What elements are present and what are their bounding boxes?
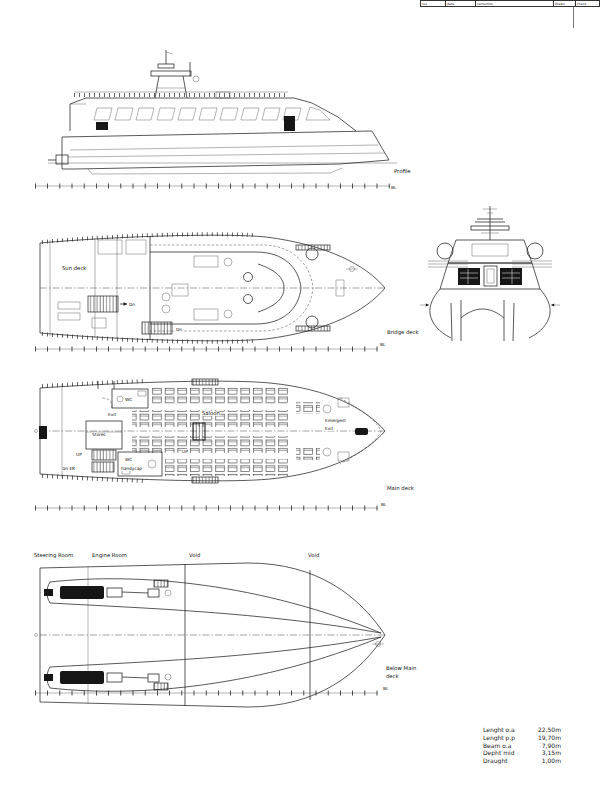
emergent-exit-label-2: Exit [325, 426, 333, 431]
seat-rows [150, 387, 288, 404]
steering-room-label: Steering Room [34, 552, 73, 559]
particular-value: 1,00m [542, 757, 561, 765]
hull-profile [62, 131, 389, 169]
window-grid-port [458, 268, 480, 285]
particular-label: Draught [483, 757, 508, 765]
sun-deck-bench [58, 302, 80, 309]
up-mid-label: UP [182, 449, 188, 454]
drawing-sheet: rev date correction drawn check [0, 0, 601, 800]
particular-value: 7,90m [542, 742, 561, 750]
stairs-mid [193, 423, 205, 440]
helm-seat [244, 295, 253, 304]
engine-stbd [60, 671, 104, 684]
deck-box [126, 240, 146, 254]
particular-row: Lenght o.a 22,50m [483, 726, 561, 734]
profile-label: Profile [394, 168, 410, 174]
side-escape-hatch [192, 379, 218, 385]
stores-label: Stores [92, 432, 106, 437]
roof-vent [216, 92, 230, 98]
lounge-chair [162, 305, 170, 313]
liferaft-front [527, 243, 543, 259]
down-er-label: Dn ER [62, 466, 75, 471]
seat-rows [296, 448, 320, 460]
particular-label: Lenght o.a [483, 726, 515, 734]
helm-seat [244, 273, 253, 282]
gearbox [107, 673, 122, 682]
liferaft-rack [296, 326, 330, 331]
ga-drawing: Profile BL Dn Dn [0, 0, 601, 800]
main-deck-label: Main deck [387, 485, 415, 491]
profile-view: Profile BL [35, 50, 410, 190]
steering-gear [44, 674, 53, 681]
bow-fitting [323, 448, 331, 456]
window-grid-stbd [500, 268, 522, 285]
down-label-2: Dn [176, 327, 182, 332]
side-door [284, 116, 295, 131]
er-hatch [154, 580, 168, 587]
hull-door [96, 122, 108, 130]
particular-row: Beam o.a 7,90m [483, 742, 561, 750]
window-band [94, 108, 301, 120]
wheelhouse-chair [224, 310, 232, 318]
sun-deck-label: Sun deck [62, 265, 87, 271]
tunnel-arch [461, 309, 504, 318]
stairs-down [88, 296, 118, 312]
particular-row: Lenght p.p 19,70m [483, 734, 561, 742]
wc-handicap-label-1: WC [125, 457, 132, 462]
wheelhouse-front [448, 240, 532, 263]
bow-door [355, 428, 368, 435]
baseline-label: BL [380, 342, 386, 347]
baseline-label: BL [391, 185, 397, 190]
bridge-deck-label: Bridge deck [387, 329, 419, 336]
engine-room-label: Engine Room [92, 552, 127, 559]
stairs-down-er [92, 462, 114, 472]
stern-door [39, 426, 47, 439]
seat-rows [296, 402, 320, 414]
seat-rows [132, 436, 290, 453]
superstructure-profile [70, 98, 356, 131]
demihull-profile [88, 168, 342, 174]
side-escape-hatch [192, 477, 218, 483]
liferaft-rack [296, 245, 330, 250]
gearbox [107, 588, 122, 597]
main-deck-view: WC Exit Stores UP Dn ER WC handycap UP S… [35, 379, 415, 508]
exit-label: Exit [108, 412, 116, 417]
wheelhouse-table [194, 256, 218, 267]
principal-particulars: Lenght o.a 22,50m Lenght p.p 19,70m Beam… [483, 726, 561, 765]
void-2-label: Void [308, 552, 319, 558]
particular-label: Depht mid [483, 749, 515, 757]
hull-flare-stbd [529, 289, 550, 338]
wheelhouse-table [194, 309, 218, 320]
below-main-deck-view: Steering Room Engine Room Void Void [34, 552, 416, 707]
windshield [306, 107, 330, 120]
up-label: UP [76, 452, 82, 457]
er-hatch [154, 683, 168, 690]
below-main-label-2: deck [386, 673, 400, 679]
void-1-label: Void [189, 552, 200, 558]
deck-box [98, 240, 122, 254]
below-main-label-1: Below Main [386, 665, 416, 671]
stairs-up [92, 450, 116, 460]
down-label: Dn [129, 302, 135, 307]
waterjet-unit [148, 589, 159, 597]
waterjet-unit [148, 674, 159, 682]
seat-rows [165, 459, 290, 476]
particular-row: Draught 1,00m [483, 757, 561, 765]
wheelhouse-chair [224, 258, 232, 266]
particular-value: 19,70m [538, 734, 561, 742]
baseline-label: BL [383, 686, 389, 691]
particular-label: Beam o.a [483, 742, 511, 750]
particular-row: Depht mid 3,15m [483, 749, 561, 757]
steering-gear [44, 589, 53, 596]
hull-flare-port [430, 289, 451, 338]
mast-profile [151, 50, 199, 98]
lounge-chair [162, 293, 170, 301]
particular-value: 22,50m [538, 726, 561, 734]
bow-view [420, 206, 560, 341]
lounge-table [172, 284, 188, 296]
bridge-deck-view: Dn Dn [35, 234, 419, 349]
saloon-label: Saloon [202, 410, 220, 416]
radome [193, 76, 199, 82]
front-window [472, 244, 508, 256]
baseline-label: BL [381, 502, 387, 507]
particular-label: Lenght p.p [483, 734, 515, 742]
sun-deck-bench [92, 318, 106, 328]
bow-fitting [323, 405, 331, 413]
wc-handicap-room [118, 452, 162, 476]
liferaft-front [437, 243, 453, 259]
wc-label: WC [125, 397, 132, 402]
stairs-down-2 [142, 322, 172, 334]
emergent-exit-label-1: Emergent [325, 418, 346, 423]
wc-handicap-label-2: handycap [121, 466, 142, 471]
engine-port [60, 586, 104, 599]
sun-deck-bench [58, 313, 80, 320]
radar-array [151, 71, 191, 76]
particular-value: 3,15m [542, 749, 561, 757]
